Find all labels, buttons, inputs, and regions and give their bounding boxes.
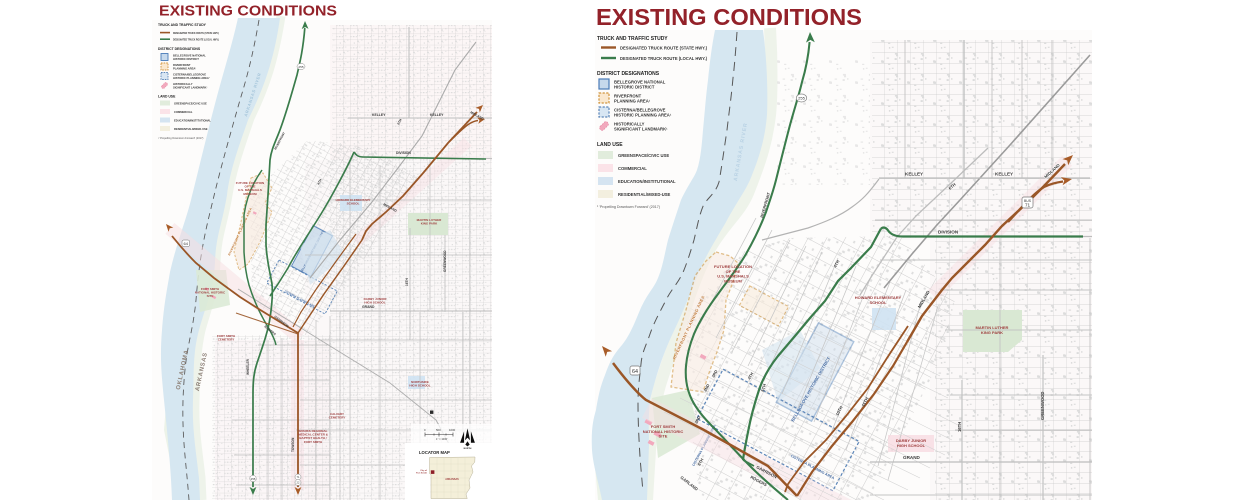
svg-text:HISTORICALLY: HISTORICALLY	[173, 82, 193, 86]
svg-text:TOWSON: TOWSON	[291, 437, 295, 452]
svg-text:EXISTING CONDITIONS: EXISTING CONDITIONS	[159, 4, 337, 20]
svg-text:LAND USE: LAND USE	[597, 142, 623, 148]
svg-text:SIGNIFICANT LANDMARK¹: SIGNIFICANT LANDMARK¹	[173, 86, 207, 90]
svg-text:255: 255	[298, 65, 303, 69]
svg-text:KELLEY: KELLEY	[430, 113, 444, 117]
svg-text:KING PARK: KING PARK	[421, 222, 438, 226]
svg-text:RESIDENTIAL/MIXED-USE: RESIDENTIAL/MIXED-USE	[174, 127, 208, 131]
svg-text:ARKANSAS: ARKANSAS	[445, 478, 459, 481]
svg-text:PLANNING AREA¹: PLANNING AREA¹	[614, 98, 651, 103]
svg-text:GREENSPACE/CIVIC USE: GREENSPACE/CIVIC USE	[618, 153, 669, 158]
svg-text:HISTORIC PLANNING AREA¹: HISTORIC PLANNING AREA¹	[173, 76, 210, 80]
svg-text:CEMETERY: CEMETERY	[329, 416, 346, 420]
svg-text:DESIGNATED TRUCK ROUTE (LOCAL: DESIGNATED TRUCK ROUTE (LOCAL HWY.)	[173, 38, 219, 42]
svg-text:GRAND: GRAND	[362, 305, 375, 309]
svg-text:DESIGNATED TRUCK ROUTE (STATE: DESIGNATED TRUCK ROUTE (STATE HWY.)	[173, 31, 219, 35]
svg-text:DIVISION: DIVISION	[396, 151, 411, 155]
svg-text:GRAND: GRAND	[903, 455, 921, 460]
svg-text:71: 71	[1025, 203, 1031, 208]
svg-text:16TH: 16TH	[957, 422, 962, 432]
svg-text:PLANNING AREA¹: PLANNING AREA¹	[173, 67, 196, 71]
svg-text:64: 64	[632, 369, 638, 375]
svg-text:SIGNIFICANT LANDMARK¹: SIGNIFICANT LANDMARK¹	[614, 126, 668, 131]
svg-text:HIGH SCHOOL: HIGH SCHOOL	[897, 443, 926, 448]
svg-text:City of: City of	[420, 469, 427, 472]
svg-text:KELLEY: KELLEY	[995, 172, 1013, 177]
svg-text:DISTRICT DESIGNATIONS: DISTRICT DESIGNATIONS	[597, 71, 660, 77]
svg-text:TRUCK AND TRAFFIC STUDY: TRUCK AND TRAFFIC STUDY	[158, 23, 207, 27]
svg-text:KELLEY: KELLEY	[372, 113, 386, 117]
svg-text:DISTRICT DESIGNATIONS: DISTRICT DESIGNATIONS	[158, 47, 201, 51]
svg-text:KELLEY: KELLEY	[905, 172, 923, 177]
svg-text:255: 255	[251, 477, 256, 481]
svg-text:SITE: SITE	[659, 434, 668, 439]
svg-text:MUSEUM: MUSEUM	[243, 192, 257, 196]
svg-text:COMMERCIAL: COMMERCIAL	[618, 166, 647, 171]
svg-text:Fort Smith: Fort Smith	[416, 472, 428, 475]
svg-text:DESIGNATED TRUCK ROUTE (STATE: DESIGNATED TRUCK ROUTE (STATE HWY.)	[620, 45, 708, 50]
svg-text:WHEELER: WHEELER	[246, 358, 250, 375]
svg-text:GREENSPACE/CIVIC USE: GREENSPACE/CIVIC USE	[174, 102, 207, 106]
svg-text:1000: 1000	[449, 428, 456, 432]
svg-text:SITE: SITE	[207, 294, 214, 298]
svg-text:RESIDENTIAL/MIXED-USE: RESIDENTIAL/MIXED-USE	[618, 192, 671, 197]
svg-text:16TH: 16TH	[405, 278, 409, 286]
svg-text:HISTORIC DISTRICT: HISTORIC DISTRICT	[173, 57, 199, 61]
svg-text:DIVISION: DIVISION	[938, 230, 959, 235]
svg-text:HIGH SCHOOL: HIGH SCHOOL	[364, 301, 385, 305]
svg-text:500: 500	[436, 428, 441, 432]
svg-text:SCHOOL: SCHOOL	[347, 202, 360, 206]
svg-text:255: 255	[798, 96, 805, 101]
svg-text:KING PARK: KING PARK	[981, 330, 1003, 335]
svg-text:64: 64	[183, 241, 188, 246]
svg-text:HISTORIC DISTRICT: HISTORIC DISTRICT	[614, 84, 655, 89]
svg-text:FORT SMITH: FORT SMITH	[304, 440, 322, 444]
svg-text:DESIGNATED TRUCK ROUTE (LOCAL: DESIGNATED TRUCK ROUTE (LOCAL HWY.)	[620, 56, 708, 61]
svg-text:MUSEUM: MUSEUM	[724, 278, 742, 283]
svg-text:LOCATOR MAP: LOCATOR MAP	[419, 450, 450, 455]
svg-text:NORTH: NORTH	[464, 448, 472, 450]
svg-text:HIGH SCHOOL: HIGH SCHOOL	[409, 384, 430, 388]
svg-text:RIVERFRONT: RIVERFRONT	[173, 63, 191, 67]
svg-text:EXISTING CONDITIONS: EXISTING CONDITIONS	[596, 4, 862, 30]
svg-text:¹ 'Propelling Downtown Forward: ¹ 'Propelling Downtown Forward' (2017)	[597, 205, 660, 209]
svg-text:SCHOOL: SCHOOL	[869, 300, 887, 305]
svg-text:CISTERNA/BELLEGROVE: CISTERNA/BELLEGROVE	[173, 73, 206, 77]
svg-text:¹ 'Propelling Downtown Forward: ¹ 'Propelling Downtown Forward' (2017)	[158, 136, 204, 140]
svg-text:TRUCK AND TRAFFIC STUDY: TRUCK AND TRAFFIC STUDY	[597, 36, 668, 42]
svg-text:BELLEGROVE NATIONAL: BELLEGROVE NATIONAL	[173, 54, 206, 58]
svg-text:COMMERCIAL: COMMERCIAL	[174, 110, 193, 114]
svg-text:CEMETERY: CEMETERY	[218, 338, 235, 342]
svg-text:HISTORIC PLANNING AREA¹: HISTORIC PLANNING AREA¹	[614, 112, 672, 117]
svg-text:GREENWOOD: GREENWOOD	[1040, 392, 1045, 420]
svg-text:1" = 1000': 1" = 1000'	[436, 437, 448, 441]
svg-text:EDUCATION/INSTITUTIONAL: EDUCATION/INSTITUTIONAL	[618, 179, 676, 184]
svg-text:GREENWOOD: GREENWOOD	[443, 250, 447, 272]
svg-text:LAND USE: LAND USE	[158, 95, 176, 99]
svg-text:EDUCATION/INSTITUTIONAL: EDUCATION/INSTITUTIONAL	[174, 119, 211, 123]
